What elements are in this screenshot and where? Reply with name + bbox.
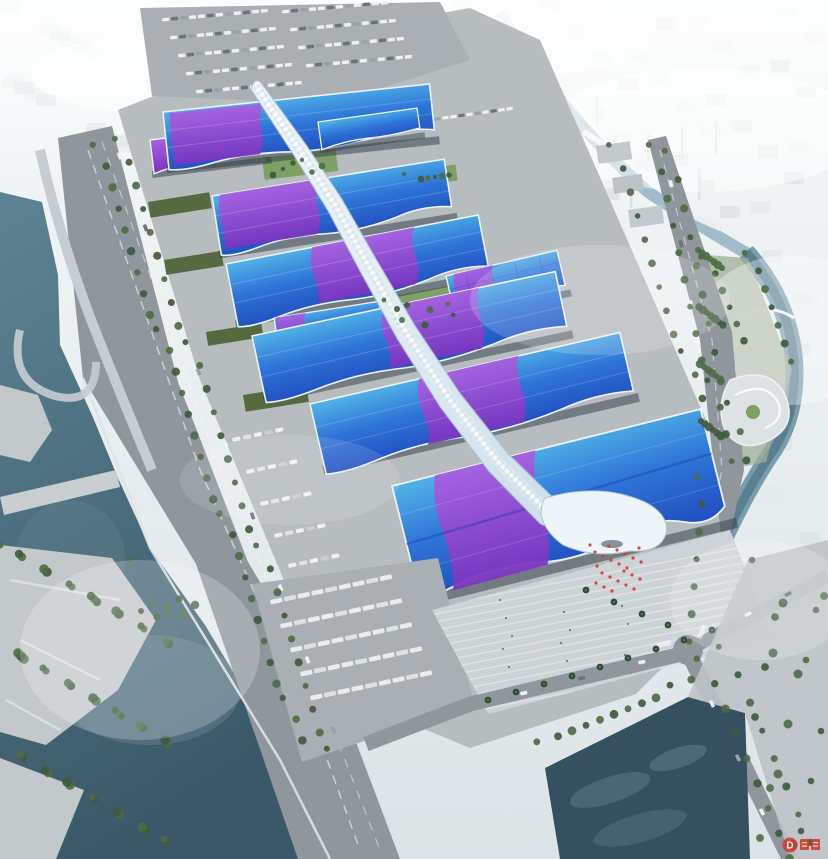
tree (719, 321, 726, 328)
red-decoration (601, 554, 604, 557)
tree (761, 285, 769, 293)
watermark-glyph-stroke (802, 842, 807, 843)
tree (583, 722, 590, 729)
watermark-glyph (800, 839, 809, 850)
tree (292, 715, 299, 722)
tree (759, 728, 765, 734)
red-decoration (616, 579, 619, 582)
visitor-dot (569, 629, 571, 631)
tree (153, 326, 159, 332)
tree (694, 656, 700, 662)
tree (433, 175, 437, 179)
tree (399, 317, 405, 323)
tree (638, 699, 646, 707)
tree (404, 302, 410, 308)
tree (784, 720, 793, 729)
tree (90, 142, 96, 148)
tree (680, 204, 688, 212)
tree (267, 659, 274, 666)
tree (771, 755, 778, 762)
watermark-glyph-stroke (813, 846, 818, 847)
spiral-courtyard (746, 405, 760, 419)
visitor-dot (566, 660, 568, 662)
tree (185, 411, 192, 418)
tree (746, 699, 754, 707)
tree (711, 680, 718, 687)
tree (716, 375, 723, 382)
tree (803, 657, 810, 664)
tree (229, 531, 236, 538)
tree (596, 716, 604, 724)
tree (273, 588, 281, 596)
tree (134, 269, 140, 275)
palm-tree-center (613, 601, 615, 603)
palm-tree-center (585, 589, 587, 591)
tree (451, 313, 456, 318)
tree (126, 159, 133, 166)
tree (742, 250, 748, 256)
tree (610, 710, 619, 719)
tree (769, 304, 775, 310)
red-decoration (637, 546, 640, 549)
palm-tree-center (571, 675, 573, 677)
visitor-dot (563, 611, 565, 613)
city-block (751, 201, 771, 213)
tree (203, 385, 211, 393)
tree (112, 136, 118, 142)
tree (147, 229, 154, 236)
fog (470, 245, 730, 355)
tree (140, 290, 147, 297)
tree (15, 550, 23, 558)
palm-tree-center (667, 624, 669, 626)
tree (426, 306, 433, 313)
red-decoration (617, 562, 620, 565)
red-decoration (600, 571, 603, 574)
tree (103, 162, 110, 169)
tree (751, 713, 759, 721)
tree (245, 525, 253, 533)
tree (662, 148, 668, 154)
tree (737, 428, 744, 435)
tree (729, 458, 735, 464)
red-decoration (609, 558, 612, 561)
red-decoration (593, 550, 596, 553)
tree (425, 175, 431, 181)
tree (699, 395, 707, 403)
watermark-glyph-stroke (813, 842, 818, 843)
tree (394, 306, 400, 312)
red-decoration (622, 569, 625, 572)
tree (235, 552, 243, 560)
tree (742, 456, 750, 464)
watermark-letter: D (786, 841, 793, 852)
city-block (800, 532, 820, 544)
tree (798, 828, 805, 835)
tree (421, 321, 428, 328)
tree (743, 755, 750, 762)
palm-tree-center (641, 613, 643, 615)
tree (635, 213, 641, 219)
tree (687, 676, 695, 684)
tree (211, 409, 217, 415)
tree (88, 793, 95, 800)
tree (172, 368, 180, 376)
tree (717, 404, 724, 411)
watermark-glyph-stroke (802, 846, 807, 847)
tree (316, 729, 324, 737)
tree (554, 732, 562, 740)
tree (300, 158, 304, 162)
tree (675, 176, 682, 183)
tree (755, 267, 762, 274)
red-decoration (588, 543, 591, 546)
palm-tree-center (599, 666, 601, 668)
tree (765, 805, 771, 811)
palm-tree-center (543, 683, 545, 685)
palm-tree-center (683, 639, 685, 641)
palm-tree-center (515, 691, 517, 693)
tree (309, 169, 315, 175)
tree (146, 311, 154, 319)
tree (309, 706, 316, 713)
tree (775, 322, 782, 329)
red-decoration (631, 556, 634, 559)
tree (775, 830, 782, 837)
tree (179, 390, 185, 396)
tree (439, 173, 446, 180)
visitor-dot (505, 617, 507, 619)
tree (694, 474, 700, 480)
tree (781, 339, 789, 347)
tree (261, 638, 267, 644)
entrance-opening (601, 540, 623, 548)
watermark-glyph (811, 839, 820, 850)
tree (625, 705, 632, 712)
red-decoration (608, 575, 611, 578)
tree (248, 595, 255, 602)
red-decoration (625, 566, 628, 569)
tree (290, 160, 296, 166)
tree (298, 736, 306, 744)
tree (753, 779, 761, 787)
tree (418, 176, 425, 183)
city-block (763, 485, 783, 497)
red-decoration (624, 583, 627, 586)
tree (808, 778, 815, 785)
red-decoration (639, 560, 642, 563)
tree (658, 168, 665, 175)
tree (41, 766, 49, 774)
palm-tree-center (627, 657, 629, 659)
tree (174, 322, 182, 330)
tree (818, 728, 825, 735)
tree (646, 142, 652, 148)
red-decoration (602, 585, 605, 588)
tree (620, 165, 627, 172)
tree (382, 298, 387, 303)
tree (267, 565, 274, 572)
tree (160, 835, 167, 842)
scene-canvas: D (0, 0, 828, 859)
tree (675, 249, 682, 256)
tree (642, 236, 649, 243)
tree (270, 172, 277, 179)
red-decoration (632, 587, 635, 590)
tree (319, 163, 326, 170)
red-decoration (595, 564, 598, 567)
tree (766, 784, 774, 792)
tree (761, 663, 769, 671)
tree (132, 182, 140, 190)
tree (303, 683, 309, 689)
tree (295, 658, 303, 666)
red-decoration (607, 544, 610, 547)
tree (446, 172, 452, 178)
tree (719, 265, 725, 271)
tree (153, 252, 161, 260)
tree (704, 377, 710, 383)
tree (652, 693, 661, 702)
tree (402, 172, 406, 176)
aerial-rendering: D (0, 0, 828, 859)
tree (721, 704, 729, 712)
visitor-dot (560, 642, 562, 644)
red-decoration (610, 589, 613, 592)
tree (756, 834, 764, 842)
tree (663, 195, 671, 203)
tree (735, 671, 742, 678)
tree (734, 321, 741, 328)
tree (137, 822, 147, 832)
tree (446, 302, 451, 307)
tree (698, 501, 705, 508)
tree (262, 158, 266, 162)
tree (740, 337, 748, 345)
tree (711, 349, 718, 356)
tree (606, 142, 612, 148)
tree (687, 234, 693, 240)
tree (108, 183, 116, 191)
tree (16, 751, 23, 758)
tree (253, 542, 259, 548)
tree (242, 574, 248, 580)
visitor-dot (502, 648, 504, 650)
tree (190, 431, 198, 439)
tree (717, 432, 726, 441)
tree (667, 682, 674, 689)
tree (695, 528, 703, 536)
fog (20, 560, 260, 740)
tree (324, 746, 330, 752)
tree (782, 783, 790, 791)
tree (113, 808, 121, 816)
tree (678, 348, 684, 354)
palm-tree-center (655, 648, 657, 650)
tree (39, 564, 49, 574)
tree (281, 167, 285, 171)
tree (272, 680, 280, 688)
tree (182, 339, 188, 345)
tree (733, 730, 739, 736)
tree (533, 738, 540, 745)
fog (180, 435, 400, 525)
tree (692, 371, 699, 378)
red-decoration (638, 577, 641, 580)
visitor-dot (508, 666, 510, 668)
red-decoration (594, 581, 597, 584)
tree (161, 276, 167, 282)
tree (774, 770, 783, 779)
tree (121, 226, 128, 233)
tree (795, 811, 801, 817)
tree (168, 299, 175, 306)
tree (196, 362, 203, 369)
tree (254, 616, 262, 624)
tree (627, 188, 635, 196)
tree (788, 359, 794, 365)
tree (288, 636, 295, 643)
tree (280, 695, 286, 701)
red-decoration (615, 548, 618, 551)
tree (670, 223, 676, 229)
tree (127, 247, 135, 255)
tree (116, 205, 122, 211)
tree (62, 777, 72, 787)
tree (217, 432, 224, 439)
red-decoration (623, 552, 626, 555)
visitor-dot (621, 605, 623, 607)
tree (568, 726, 577, 735)
visitor-dot (627, 623, 629, 625)
visitor-dot (499, 599, 501, 601)
visitor-dot (511, 635, 513, 637)
palm-tree-center (487, 699, 489, 701)
city-block (720, 206, 740, 218)
tree (281, 613, 287, 619)
tree (166, 347, 173, 354)
tree (724, 400, 730, 406)
tree (794, 670, 803, 679)
red-decoration (630, 573, 633, 576)
tree (140, 206, 146, 212)
